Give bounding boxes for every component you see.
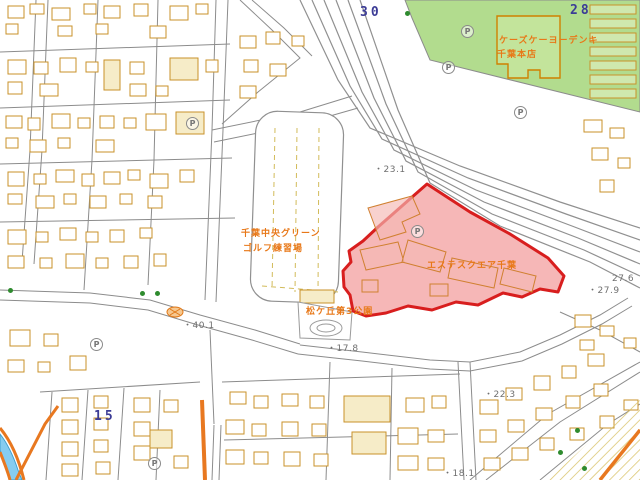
sheet-number-28: 28: [570, 4, 592, 17]
elevation-18-1: ・18.1: [443, 470, 475, 479]
parking-symbol-6: P: [148, 457, 161, 470]
parcel-building-name: エステスクエア千葉: [427, 262, 517, 271]
parking-symbol-2: P: [514, 106, 527, 119]
elevation-27-6: 27.6: [612, 275, 634, 284]
elevation-27-9: ・27.9: [588, 287, 620, 296]
elevation-17-8: ・17.8: [327, 345, 359, 354]
store-name-line1: ケーズケーヨーデンキ: [499, 37, 599, 46]
vegetation-symbol-0: [405, 11, 410, 16]
parking-symbol-4: P: [411, 225, 424, 238]
sheet-number-30: 30: [360, 6, 382, 19]
elevation-22-3: ・22.3: [484, 391, 516, 400]
vegetation-symbol-3: [155, 291, 160, 296]
vegetation-symbol-4: [575, 428, 580, 433]
store-name-line2: 千葉本店: [497, 51, 537, 60]
elevation-23-1: ・23.1: [374, 166, 406, 175]
elevation-40-1: ・40.1: [183, 322, 215, 331]
parking-symbol-3: P: [186, 117, 199, 130]
vegetation-symbol-2: [140, 291, 145, 296]
label-overlay: 302815ケーズケーヨーデンキ千葉本店千葉中央グリーンゴルフ練習場エステスクエ…: [0, 0, 640, 480]
map-canvas[interactable]: 302815ケーズケーヨーデンキ千葉本店千葉中央グリーンゴルフ練習場エステスクエ…: [0, 0, 640, 480]
sheet-number-15: 15: [94, 410, 116, 423]
parking-symbol-5: P: [90, 338, 103, 351]
vegetation-symbol-6: [558, 450, 563, 455]
park-name: 松ケ丘第3公園: [306, 308, 373, 317]
vegetation-symbol-1: [8, 288, 13, 293]
golf-range-name-line1: 千葉中央グリーン: [241, 230, 321, 239]
vegetation-symbol-5: [582, 466, 587, 471]
parking-symbol-1: P: [442, 61, 455, 74]
golf-range-name-line2: ゴルフ練習場: [243, 245, 303, 254]
parking-symbol-0: P: [461, 25, 474, 38]
